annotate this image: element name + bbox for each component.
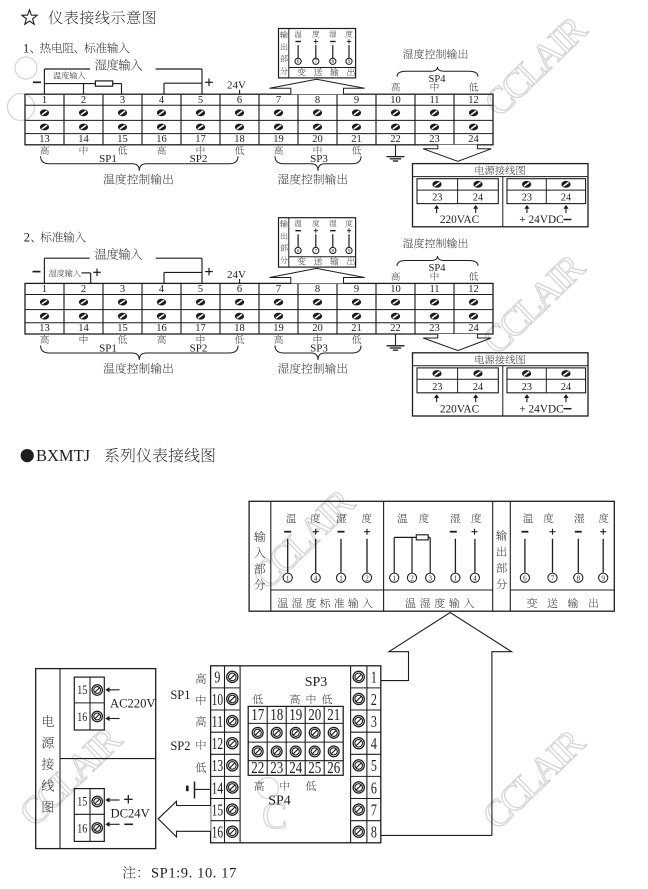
svg-text:SP4: SP4	[429, 263, 447, 274]
svg-text:11: 11	[212, 712, 224, 731]
svg-text:5: 5	[198, 95, 203, 106]
svg-text:13: 13	[39, 134, 50, 145]
svg-text:1: 1	[42, 95, 47, 106]
svg-text:17: 17	[251, 705, 264, 724]
svg-text:7: 7	[551, 574, 555, 582]
svg-text:4: 4	[159, 284, 165, 295]
svg-text:24: 24	[289, 758, 302, 777]
svg-text:7: 7	[315, 59, 318, 65]
svg-text:23: 23	[270, 758, 283, 777]
svg-text:17: 17	[195, 323, 206, 334]
svg-text:18: 18	[270, 705, 283, 724]
svg-text:24V: 24V	[227, 269, 246, 281]
svg-text:8: 8	[315, 284, 320, 295]
svg-text:24: 24	[561, 382, 571, 393]
svg-text:22: 22	[251, 758, 264, 777]
svg-text:23: 23	[432, 193, 442, 204]
svg-text:+ 24VDC: + 24VDC	[519, 403, 563, 415]
svg-text:10: 10	[212, 690, 224, 709]
svg-text:14: 14	[78, 323, 89, 334]
svg-text:7: 7	[371, 800, 377, 819]
svg-text:15: 15	[77, 795, 87, 809]
svg-text:15: 15	[77, 683, 87, 697]
svg-text:22: 22	[390, 323, 401, 334]
svg-text:19: 19	[289, 705, 302, 724]
svg-text:1: 1	[339, 574, 343, 582]
svg-text:21: 21	[351, 134, 362, 145]
svg-text:9: 9	[214, 668, 220, 687]
svg-text:BXMTJ: BXMTJ	[36, 446, 91, 465]
svg-text:16: 16	[77, 710, 87, 724]
svg-text:9: 9	[348, 248, 351, 254]
svg-text:2: 2	[81, 284, 86, 295]
svg-text:8: 8	[315, 95, 320, 106]
svg-text:10: 10	[390, 284, 401, 295]
svg-text:220VAC: 220VAC	[440, 403, 479, 415]
svg-text:12: 12	[212, 734, 224, 753]
svg-text:19: 19	[273, 134, 284, 145]
svg-text:23: 23	[429, 323, 440, 334]
svg-text:10: 10	[390, 95, 401, 106]
svg-text:2: 2	[410, 574, 414, 582]
svg-text:6: 6	[371, 778, 377, 797]
svg-text:7: 7	[276, 284, 281, 295]
svg-text:8: 8	[332, 248, 335, 254]
svg-text:+ 24VDC: + 24VDC	[519, 214, 563, 226]
svg-text:23: 23	[429, 134, 440, 145]
svg-text:13: 13	[39, 323, 50, 334]
svg-text:4: 4	[473, 574, 477, 582]
svg-text:21: 21	[327, 705, 340, 724]
svg-text:SP2: SP2	[170, 739, 190, 753]
svg-text:3: 3	[120, 284, 125, 295]
svg-text:12: 12	[468, 95, 479, 106]
svg-text:16: 16	[212, 823, 224, 842]
svg-text:220VAC: 220VAC	[440, 214, 479, 226]
svg-text:6: 6	[237, 284, 242, 295]
svg-text:12: 12	[468, 284, 479, 295]
svg-text:15: 15	[117, 323, 128, 334]
svg-text:SP1:9. 10. 17: SP1:9. 10. 17	[151, 866, 237, 882]
svg-text:SP4: SP4	[429, 74, 447, 85]
svg-text:1: 1	[286, 574, 290, 582]
svg-text:SP4: SP4	[268, 794, 291, 809]
svg-text:18: 18	[234, 323, 245, 334]
svg-text:4: 4	[159, 95, 165, 106]
svg-text:17: 17	[195, 134, 206, 145]
svg-text:15: 15	[117, 134, 128, 145]
svg-text:14: 14	[212, 778, 224, 797]
svg-text:11: 11	[429, 284, 439, 295]
svg-text:23: 23	[432, 382, 442, 393]
svg-text:AC220V: AC220V	[110, 696, 155, 710]
svg-text:26: 26	[327, 758, 340, 777]
svg-text:20: 20	[312, 323, 323, 334]
svg-text:7: 7	[315, 248, 318, 254]
svg-text:25: 25	[308, 758, 321, 777]
svg-text:9: 9	[354, 284, 359, 295]
svg-text:5: 5	[198, 284, 203, 295]
svg-text:16: 16	[156, 323, 167, 334]
svg-text:DC24V: DC24V	[111, 807, 150, 821]
svg-text:SP3: SP3	[305, 675, 328, 690]
svg-text:24: 24	[468, 323, 479, 334]
svg-text:13: 13	[212, 756, 224, 775]
svg-text:2: 2	[81, 95, 86, 106]
svg-text:21: 21	[351, 323, 362, 334]
svg-text:24: 24	[473, 193, 483, 204]
svg-text:8: 8	[371, 823, 377, 842]
svg-text:14: 14	[78, 134, 89, 145]
svg-text:6: 6	[237, 95, 242, 106]
svg-text:3: 3	[120, 95, 125, 106]
svg-text:6: 6	[297, 59, 300, 65]
svg-text:9: 9	[601, 574, 605, 582]
svg-text:3: 3	[428, 574, 432, 582]
svg-text:3: 3	[371, 712, 377, 731]
svg-text:6: 6	[523, 574, 527, 582]
svg-text:24: 24	[468, 134, 479, 145]
svg-text:2: 2	[24, 231, 30, 245]
svg-text:20: 20	[312, 134, 323, 145]
svg-text:6: 6	[297, 248, 300, 254]
svg-text:20: 20	[308, 705, 321, 724]
svg-text:1: 1	[23, 41, 29, 55]
svg-text:SP1: SP1	[170, 688, 190, 702]
svg-text:9: 9	[348, 59, 351, 65]
svg-text:16: 16	[77, 821, 87, 835]
svg-text:23: 23	[522, 193, 532, 204]
svg-text:8: 8	[577, 574, 581, 582]
svg-text:24: 24	[561, 193, 571, 204]
svg-text:1: 1	[42, 284, 47, 295]
svg-text:9: 9	[354, 95, 359, 106]
svg-text:23: 23	[522, 382, 532, 393]
svg-text:1: 1	[454, 574, 458, 582]
svg-text:22: 22	[390, 134, 401, 145]
svg-text:2: 2	[371, 690, 377, 709]
svg-text:5: 5	[371, 756, 377, 775]
svg-text:16: 16	[156, 134, 167, 145]
svg-text:1: 1	[371, 668, 377, 687]
svg-text:15: 15	[212, 800, 224, 819]
svg-text:1: 1	[392, 574, 396, 582]
svg-text:8: 8	[332, 59, 335, 65]
svg-text:11: 11	[429, 95, 439, 106]
svg-text:4: 4	[314, 574, 318, 582]
svg-text:7: 7	[276, 95, 281, 106]
svg-text:2: 2	[365, 574, 369, 582]
svg-text:24V: 24V	[227, 80, 246, 92]
svg-text:24: 24	[473, 382, 483, 393]
svg-text:19: 19	[273, 323, 284, 334]
svg-text:18: 18	[234, 134, 245, 145]
svg-text:4: 4	[371, 734, 377, 753]
